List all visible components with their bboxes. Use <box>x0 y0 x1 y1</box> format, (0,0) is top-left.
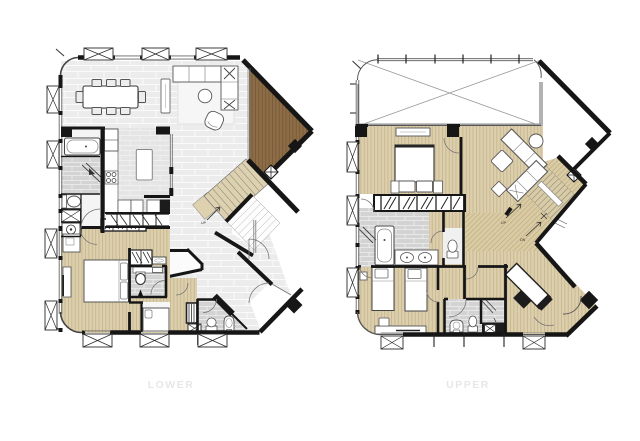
svg-text:UP: UP <box>501 221 507 225</box>
svg-text:LOWER: LOWER <box>148 379 195 391</box>
svg-text:UP: UP <box>201 221 207 225</box>
svg-text:UPPER: UPPER <box>446 379 490 391</box>
svg-text:DN: DN <box>520 238 526 242</box>
